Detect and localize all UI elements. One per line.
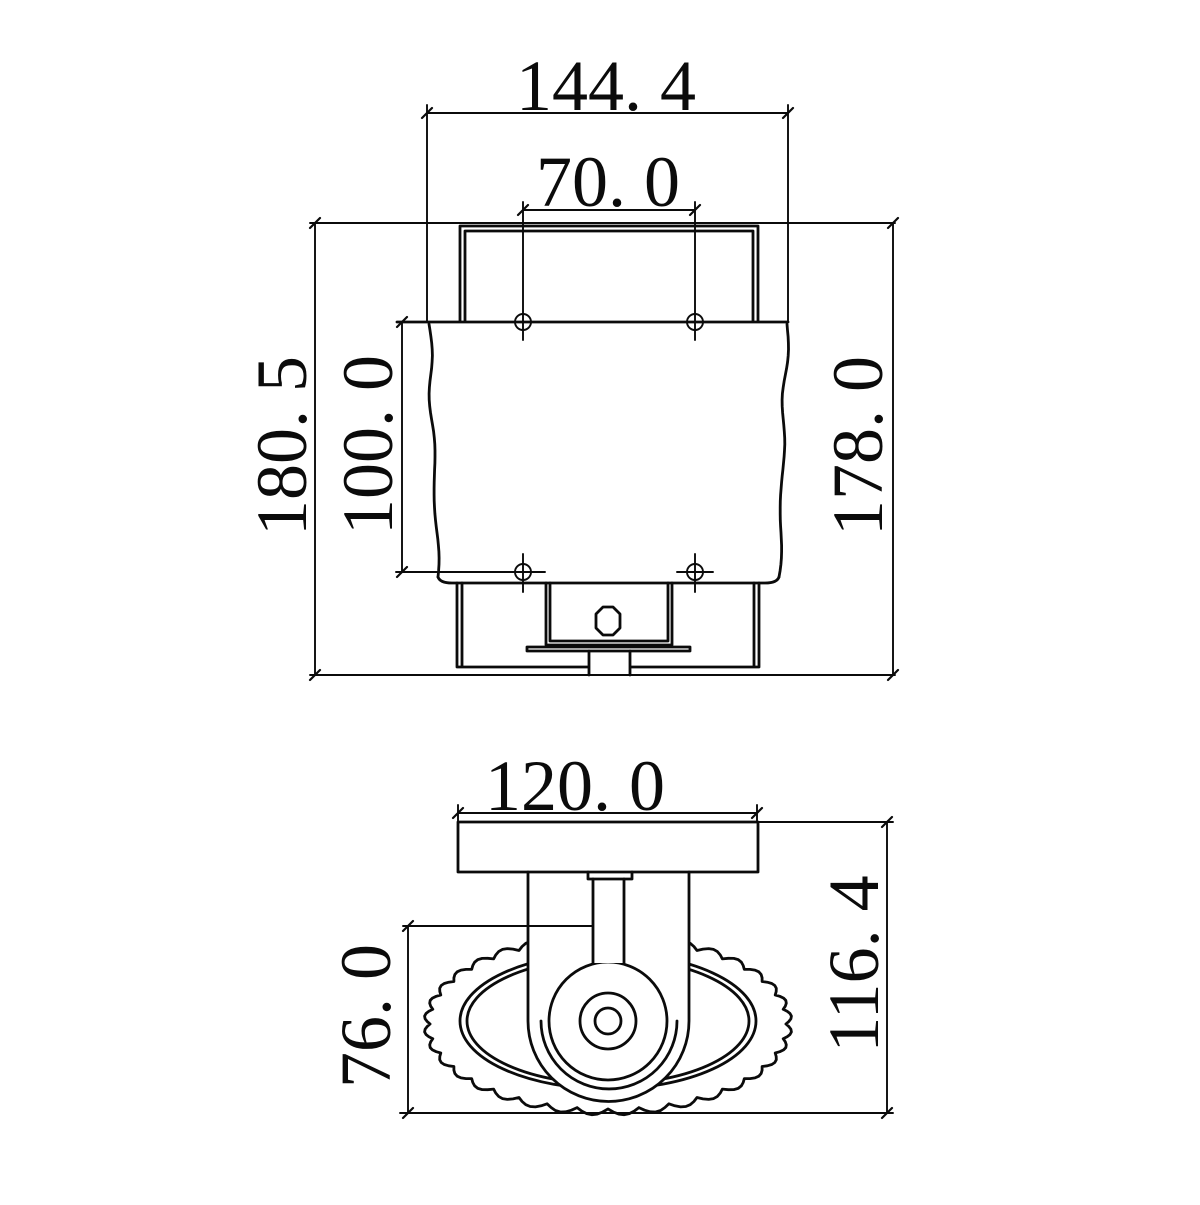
dim-overall-height-label: 180. 5 — [242, 356, 322, 536]
technical-drawing: 144. 4 70. 0 180. 5 100. 0 178. 0 120. 0… — [0, 0, 1200, 1200]
dim-shade-depth-label: 76. 0 — [326, 944, 406, 1088]
dim-body-height-label: 178. 0 — [818, 356, 898, 536]
bottom-view: 120. 0 76. 0 116. 4 — [326, 746, 894, 1115]
dim-plate-width-label: 120. 0 — [485, 746, 665, 826]
dim-overall-width-label: 144. 4 — [516, 46, 696, 126]
backplate-outline — [460, 226, 758, 321]
dim-hole-pitch-horizontal-label: 70. 0 — [536, 142, 680, 222]
dim-overall-depth-label: 116. 4 — [814, 875, 894, 1052]
shade-bottom-edge — [438, 577, 779, 583]
hole-crosshairs — [505, 554, 713, 592]
stem-front — [589, 651, 630, 675]
shade-right-edge — [779, 324, 789, 577]
octagon-hole — [596, 607, 620, 635]
lamp-bracket-outline — [457, 583, 759, 667]
shade-left-edge — [429, 324, 439, 577]
mounting-plate — [458, 822, 758, 872]
stem-fill — [593, 879, 624, 963]
drawing-sheet: 144. 4 70. 0 180. 5 100. 0 178. 0 120. 0… — [0, 0, 1200, 1200]
dim-hole-pitch-vertical-label: 100. 0 — [328, 355, 408, 535]
front-view: 144. 4 70. 0 180. 5 100. 0 178. 0 — [242, 46, 898, 675]
flange-plate — [527, 647, 690, 651]
